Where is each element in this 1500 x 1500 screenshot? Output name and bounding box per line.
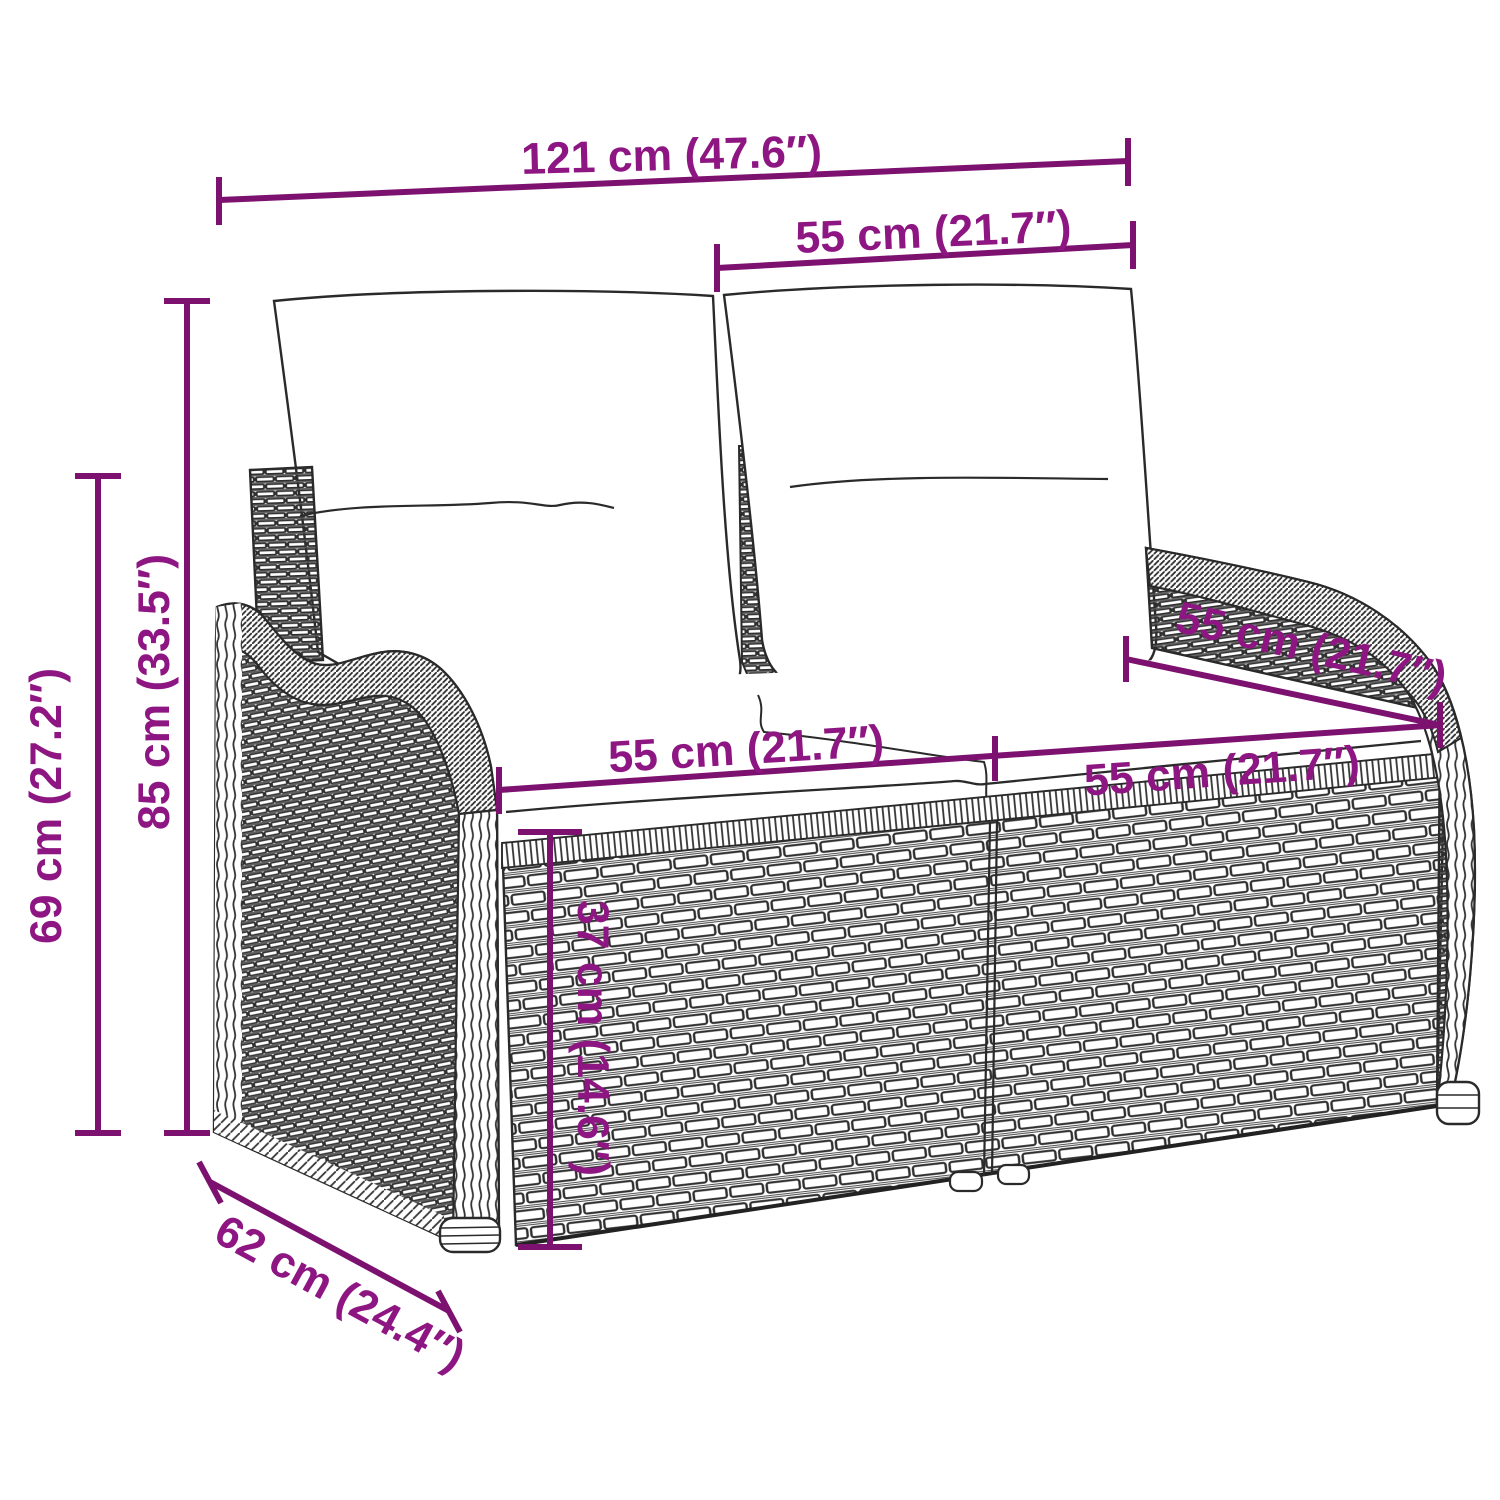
svg-text:69 cm (27.2″): 69 cm (27.2″) <box>22 668 71 944</box>
svg-text:55 cm (21.7″): 55 cm (21.7″) <box>794 202 1072 263</box>
svg-text:37 cm (14.6″): 37 cm (14.6″) <box>568 900 617 1176</box>
svg-text:121 cm (47.6″): 121 cm (47.6″) <box>521 127 823 184</box>
svg-text:85 cm (33.5″): 85 cm (33.5″) <box>130 554 179 830</box>
